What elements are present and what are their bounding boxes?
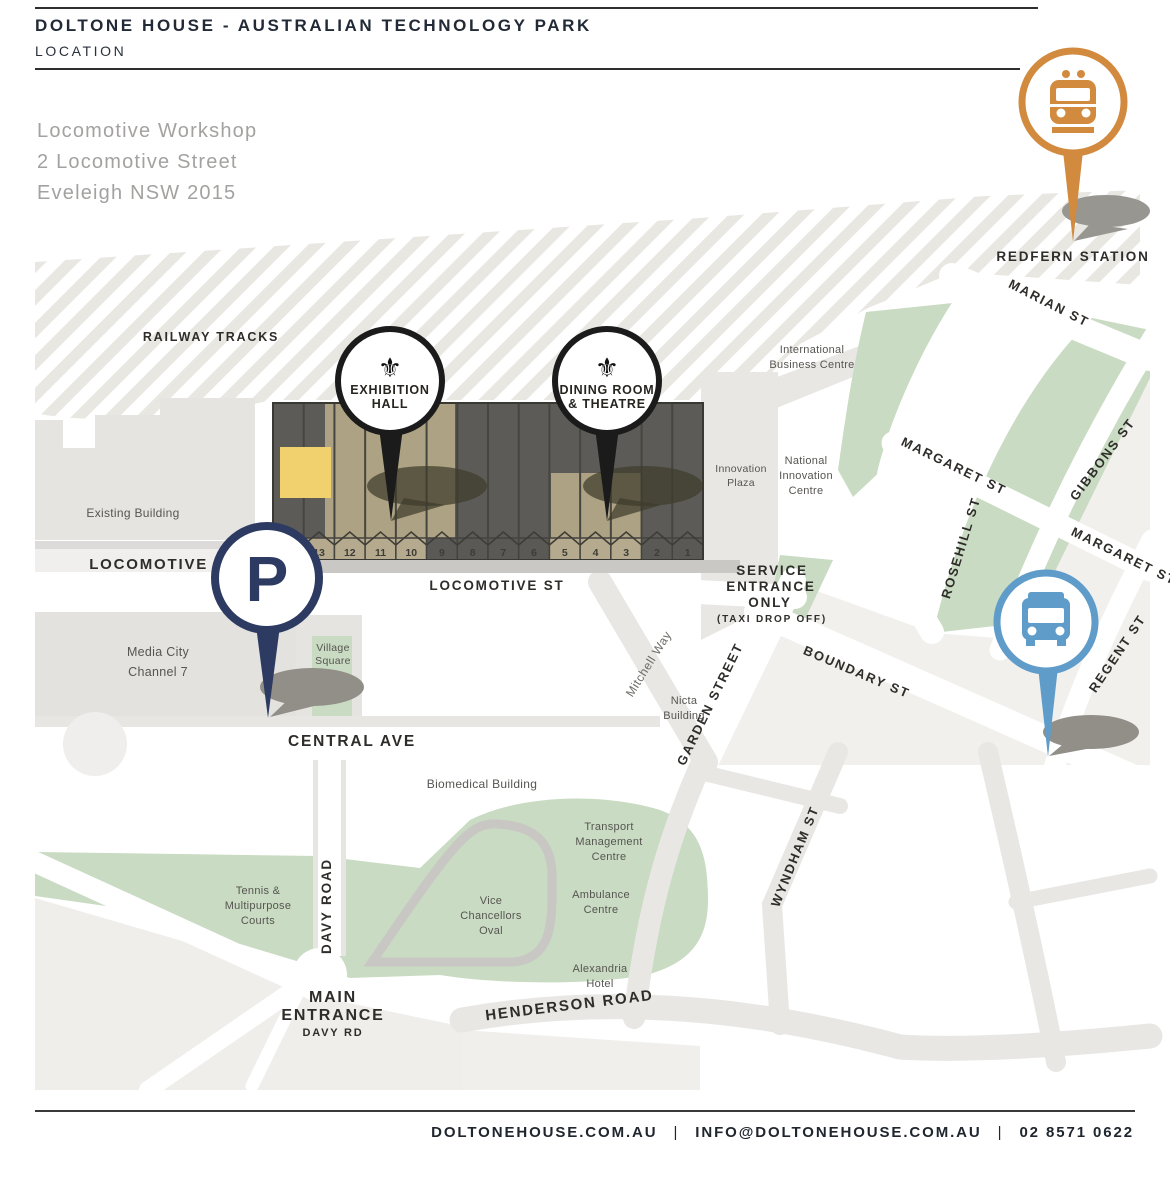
place-label-line: Innovation [779, 470, 833, 482]
place-label-line: Existing Building [86, 506, 179, 520]
service-line-1: SERVICE [736, 563, 808, 578]
place-label-line: National [785, 455, 828, 467]
bay-number: 4 [593, 547, 599, 559]
street-label: DAVY ROAD [319, 858, 334, 954]
place-label-line: Village [316, 642, 349, 654]
exhibition-label-2: HALL [372, 397, 409, 411]
street-label: LOCOMOTIVE ST [429, 578, 564, 593]
central-ave-circle [63, 712, 127, 776]
street-label: RAILWAY TRACKS [143, 330, 279, 344]
bay-number: 9 [439, 547, 445, 559]
bay-number: 5 [562, 547, 568, 559]
street-label: WYNDHAM ST [768, 804, 822, 909]
main-entrance-sub: DAVY RD [302, 1027, 363, 1039]
place-label-line: Building [663, 710, 705, 722]
bay-number: 11 [375, 547, 386, 559]
service-line-2: ENTRANCE [726, 579, 815, 594]
place-label-line: Multipurpose [225, 900, 292, 912]
place-label: VillageSquare [315, 642, 351, 667]
bay-number: 10 [405, 547, 417, 559]
place-label-line: Business Centre [769, 359, 854, 371]
bay-number: 12 [344, 547, 356, 559]
place-label-line: Channel 7 [128, 665, 188, 679]
bay-number: 7 [500, 547, 506, 559]
place-label: NationalInnovationCentre [779, 455, 833, 497]
taxi-drop-off-label: (TAXI DROP OFF) [717, 614, 827, 625]
se-branch-road [1016, 876, 1150, 902]
central-ave-sidewalk [35, 716, 660, 727]
main-entrance-line-2: ENTRANCE [281, 1007, 384, 1024]
exhibition-highlight [280, 447, 331, 498]
bay-number: 3 [623, 547, 629, 559]
bus-icon [1022, 592, 1070, 646]
parking-icon: P [246, 543, 289, 615]
building-shadow-strip [300, 560, 740, 573]
place-label-line: Chancellors [460, 910, 522, 922]
place-label-line: Oval [479, 925, 503, 937]
bay-number: 6 [531, 547, 537, 559]
exhibition-label-1: EXHIBITION [350, 383, 430, 397]
footer-website[interactable]: DOLTONEHOUSE.COM.AU [431, 1124, 657, 1141]
place-label-line: Innovation [715, 463, 766, 475]
footer-separator: | [674, 1124, 680, 1141]
place-label-line: Centre [584, 904, 619, 916]
footer-phone: 02 8571 0622 [1019, 1124, 1134, 1141]
place-label-line: Square [315, 655, 351, 667]
service-line-3: ONLY [748, 595, 791, 610]
street-label: CENTRAL AVE [288, 733, 416, 750]
redfern-station-label: REDFERN STATION [996, 249, 1149, 264]
place-label-line: Hotel [586, 978, 613, 990]
bay-number: 2 [654, 547, 660, 559]
dining-label-2: & THEATRE [568, 397, 646, 411]
place-label-line: International [780, 344, 844, 356]
footer-email[interactable]: INFO@DOLTONEHOUSE.COM.AU [695, 1124, 981, 1141]
footer-separator: | [998, 1124, 1004, 1141]
place-label: Biomedical Building [427, 777, 537, 791]
place-label-line: Centre [592, 851, 627, 863]
south-district [462, 1030, 700, 1090]
page: { "header": { "title": "DOLTONE HOUSE - … [0, 0, 1170, 1180]
place-label-line: Ambulance [572, 889, 630, 901]
place-label-line: Vice [480, 895, 502, 907]
location-map: 1413121110987654321 RAILWAY TRACKSLOCOMO… [0, 0, 1170, 1180]
main-entrance-line-1: MAIN [309, 989, 357, 1006]
place-label-line: Management [575, 836, 642, 848]
dining-label-1: DINING ROOM [560, 383, 655, 397]
fleur-de-lis-icon: ⚜ [595, 353, 619, 383]
bay-number: 1 [685, 547, 691, 559]
place-label: Existing Building [86, 506, 179, 520]
place-label-line: Biomedical Building [427, 777, 537, 791]
place-label-line: Alexandria [573, 963, 629, 975]
place-label-line: Plaza [727, 477, 755, 489]
place-label-line: Transport [584, 821, 633, 833]
place-label-line: Centre [789, 485, 824, 497]
place-label-line: Media City [127, 645, 189, 659]
footer-divider [35, 1110, 1135, 1112]
footer-contact: DOLTONEHOUSE.COM.AU | INFO@DOLTONEHOUSE.… [431, 1124, 1134, 1141]
place-label-line: Tennis & [236, 885, 281, 897]
bay-number: 8 [470, 547, 476, 559]
fleur-de-lis-icon: ⚜ [378, 353, 402, 383]
place-label-line: Courts [241, 915, 275, 927]
place-label-line: Nicta [671, 695, 698, 707]
